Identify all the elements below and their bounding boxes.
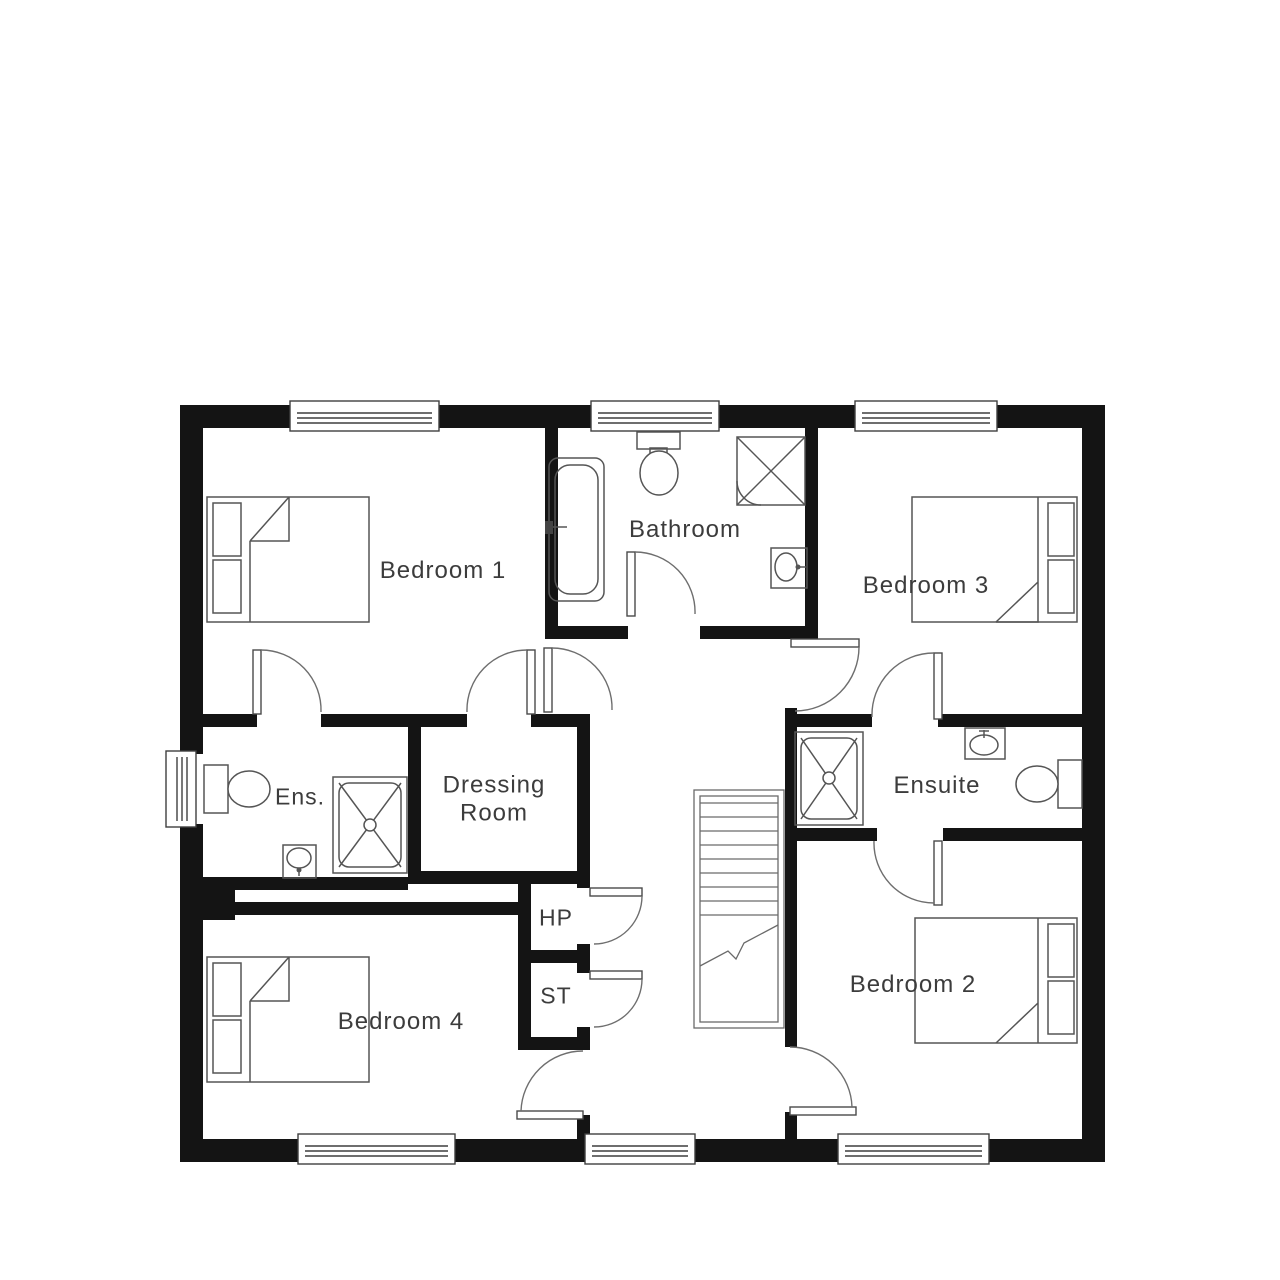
room-label-hp: HP xyxy=(539,904,573,931)
room-label-bedroom-4: Bedroom 4 xyxy=(338,1008,464,1036)
sink-bathroom xyxy=(771,548,807,588)
door-bedroom-4 xyxy=(517,1051,583,1119)
window-ens xyxy=(166,751,196,827)
sink-ens xyxy=(283,845,316,878)
floor-plan-page: Bedroom 1 Bathroom Bedroom 3 Ens. Dressi… xyxy=(0,0,1280,1280)
door-bathroom xyxy=(627,552,695,616)
window-bedroom-1 xyxy=(290,401,439,431)
toilet-ensuite xyxy=(1016,760,1082,808)
door-hp-closet xyxy=(590,888,642,944)
room-label-bedroom-1: Bedroom 1 xyxy=(380,557,506,585)
window-bedroom-2 xyxy=(838,1134,989,1164)
door-st-closet xyxy=(590,971,642,1027)
toilet-bathroom xyxy=(637,432,680,495)
shower-ens xyxy=(333,777,407,873)
shower-ensuite xyxy=(795,732,863,825)
stairs xyxy=(694,790,784,1028)
door-bedroom-1 xyxy=(544,648,612,712)
bed-bedroom-1 xyxy=(207,497,369,622)
door-bedroom-2 xyxy=(790,1047,856,1115)
shower-bathroom xyxy=(737,437,805,505)
window-bedroom-3 xyxy=(855,401,997,431)
room-label-ens: Ens. xyxy=(275,783,325,810)
door-ensuite-south xyxy=(874,841,942,905)
door-bedroom-3 xyxy=(791,639,859,711)
room-label-st: ST xyxy=(540,982,571,1009)
stairs-break-line xyxy=(700,925,778,966)
room-label-dressing-room: Dressing Room xyxy=(429,772,559,829)
bed-bedroom-3 xyxy=(912,497,1077,622)
door-dressing-room xyxy=(467,650,535,714)
window-bathroom xyxy=(591,401,719,431)
door-ens xyxy=(253,650,321,714)
room-label-bedroom-3: Bedroom 3 xyxy=(863,572,989,600)
room-label-bathroom: Bathroom xyxy=(629,516,741,544)
window-bedroom-4 xyxy=(298,1134,455,1164)
room-label-bedroom-2: Bedroom 2 xyxy=(850,971,976,999)
floor-plan-drawing xyxy=(0,0,1280,1280)
door-ensuite-north xyxy=(872,653,942,719)
toilet-ens xyxy=(204,765,270,813)
sink-ensuite xyxy=(965,728,1005,759)
room-label-ensuite: Ensuite xyxy=(893,772,980,800)
window-landing xyxy=(585,1134,695,1164)
